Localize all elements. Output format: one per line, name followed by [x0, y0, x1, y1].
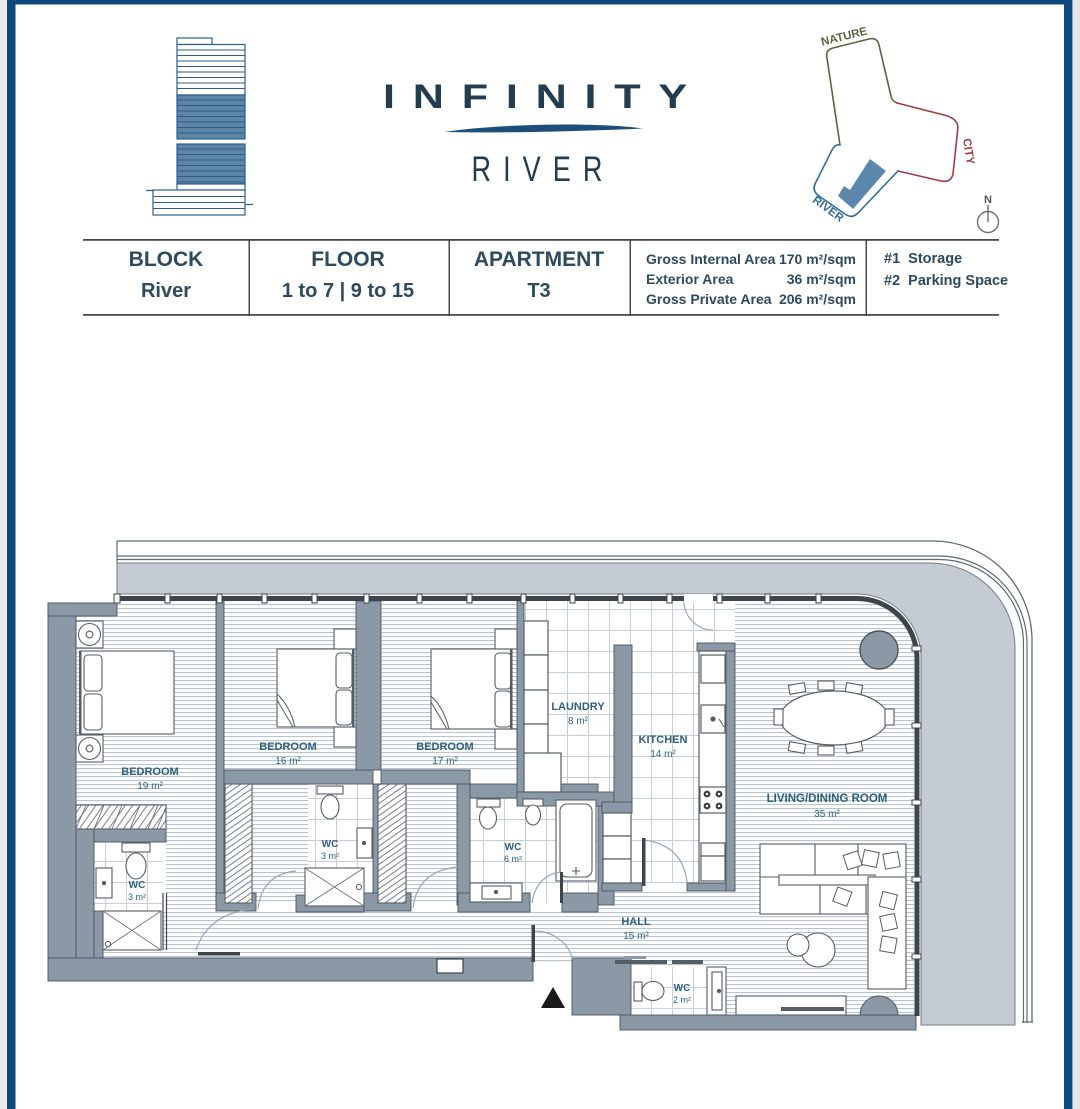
svg-text:36 m²/sqm: 36 m²/sqm	[787, 271, 856, 287]
svg-text:BEDROOM: BEDROOM	[121, 766, 178, 778]
svg-text:CITY: CITY	[960, 138, 976, 166]
svg-text:206 m²/sqm: 206 m²/sqm	[779, 291, 856, 307]
svg-text:6 m²: 6 m²	[504, 854, 522, 864]
svg-text:FLOOR: FLOOR	[311, 248, 385, 271]
svg-text:Exterior Area: Exterior Area	[646, 271, 734, 287]
svg-text:WC: WC	[322, 839, 339, 850]
svg-text:HALL: HALL	[621, 916, 651, 928]
svg-text:16 m²: 16 m²	[275, 756, 301, 767]
svg-text:8 m²: 8 m²	[568, 716, 589, 727]
svg-text:15 m²: 15 m²	[623, 931, 649, 942]
svg-text:3 m²: 3 m²	[321, 851, 339, 861]
svg-text:2 m²: 2 m²	[673, 995, 691, 1005]
svg-text:T3: T3	[527, 280, 550, 302]
svg-text:LIVING/DINING ROOM: LIVING/DINING ROOM	[767, 793, 888, 805]
svg-text:RIVER: RIVER	[472, 148, 615, 189]
svg-text:170 m²/sqm: 170 m²/sqm	[779, 251, 856, 267]
svg-text:WC: WC	[674, 983, 691, 994]
svg-text:INFINITY: INFINITY	[383, 78, 705, 116]
svg-text:N: N	[984, 194, 992, 206]
svg-text:WC: WC	[505, 842, 522, 853]
svg-text:1 to 7 | 9 to 15: 1 to 7 | 9 to 15	[282, 280, 414, 302]
svg-text:River: River	[141, 280, 191, 302]
svg-text:APARTMENT: APARTMENT	[474, 248, 604, 271]
svg-text:BEDROOM: BEDROOM	[259, 741, 316, 753]
svg-text:#1 Storage: #1 Storage	[884, 251, 962, 267]
svg-text:Gross Internal Area: Gross Internal Area	[646, 251, 776, 267]
svg-text:35 m²: 35 m²	[814, 809, 840, 820]
svg-text:KITCHEN: KITCHEN	[639, 734, 688, 746]
svg-text:BEDROOM: BEDROOM	[416, 741, 473, 753]
svg-text:14 m²: 14 m²	[650, 749, 676, 760]
svg-text:WC: WC	[129, 880, 146, 891]
svg-text:17 m²: 17 m²	[432, 756, 458, 767]
svg-text:19 m²: 19 m²	[137, 781, 163, 792]
svg-text:Gross Private Area: Gross Private Area	[646, 291, 772, 307]
svg-text:BLOCK: BLOCK	[129, 248, 204, 271]
svg-text:#2 Parking Space: #2 Parking Space	[884, 273, 1008, 289]
svg-text:LAUNDRY: LAUNDRY	[551, 701, 605, 713]
svg-text:3 m²: 3 m²	[128, 892, 146, 902]
